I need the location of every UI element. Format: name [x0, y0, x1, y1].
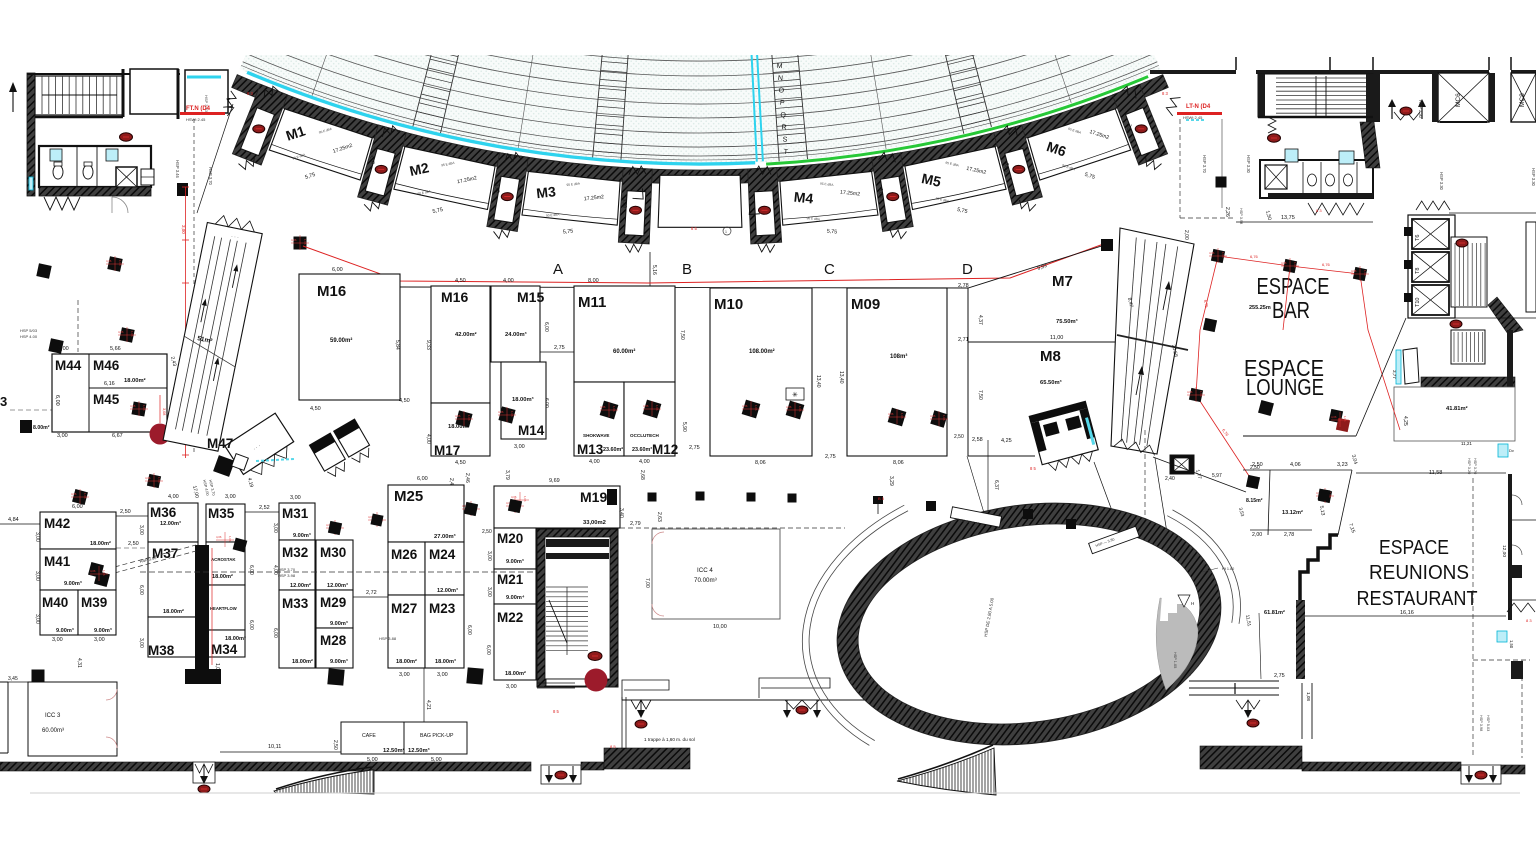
- svg-text:1,06: 1,06: [83, 493, 87, 499]
- svg-text:12.00m³: 12.00m³: [437, 587, 458, 594]
- svg-text:3,00: 3,00: [486, 587, 492, 597]
- svg-text:M36: M36: [150, 505, 177, 520]
- svg-text:2,58: 2,58: [972, 437, 983, 443]
- svg-text:4,06: 4,06: [600, 405, 606, 409]
- svg-text:3,00: 3,00: [225, 494, 236, 500]
- svg-text:4,06: 4,06: [145, 476, 151, 480]
- svg-text:MC6: MC6: [1455, 93, 1462, 107]
- svg-text:3,45: 3,45: [8, 676, 18, 682]
- svg-text:27.00m³: 27.00m³: [434, 533, 456, 540]
- svg-text:M40: M40: [42, 595, 68, 610]
- svg-text:HSP 3.30: HSP 3.30: [1439, 172, 1444, 191]
- svg-text:M38: M38: [148, 643, 175, 658]
- svg-text:4,06: 4,06: [511, 495, 517, 499]
- svg-text:M39: M39: [81, 595, 107, 610]
- svg-text:3,77: 3,77: [1392, 370, 1397, 379]
- svg-text:8,06: 8,06: [893, 460, 904, 466]
- svg-text:M19: M19: [580, 489, 607, 505]
- svg-text:HSP 3.98: HSP 3.98: [278, 573, 296, 578]
- svg-text:2,00: 2,00: [1252, 532, 1262, 538]
- svg-text:M14: M14: [518, 423, 545, 438]
- svg-text:3,00: 3,00: [437, 672, 448, 678]
- svg-text:1,06: 1,06: [1363, 270, 1367, 276]
- svg-text:8 3: 8 3: [247, 91, 253, 96]
- svg-text:3,00: 3,00: [621, 199, 628, 209]
- svg-text:FT.N (D4: FT.N (D4: [186, 106, 211, 112]
- svg-text:11,21: 11,21: [1461, 441, 1472, 446]
- svg-text:9.00m³: 9.00m³: [56, 627, 74, 634]
- svg-text:C: C: [824, 261, 835, 278]
- svg-text:M8: M8: [1040, 348, 1061, 365]
- svg-text:M42: M42: [44, 516, 70, 531]
- svg-text:5,75: 5,75: [563, 228, 574, 235]
- svg-text:4,00: 4,00: [168, 494, 179, 500]
- svg-text:4,25: 4,25: [1402, 416, 1408, 426]
- svg-text:M3: M3: [536, 183, 557, 201]
- svg-text:4,06: 4,06: [118, 330, 124, 334]
- svg-text:4,06: 4,06: [930, 414, 936, 418]
- svg-text:HSWt 2.45: HSWt 2.45: [186, 117, 206, 122]
- svg-text:M12: M12: [652, 442, 678, 457]
- svg-text:6,00: 6,00: [485, 645, 491, 655]
- svg-text:3,00: 3,00: [399, 672, 410, 678]
- svg-text:9,33: 9,33: [425, 340, 431, 350]
- svg-text:✳: ✳: [792, 391, 798, 399]
- svg-text:18.00m²: 18.00m²: [396, 658, 417, 665]
- svg-text:4,84: 4,84: [8, 517, 19, 523]
- svg-text:42.00m²: 42.00m²: [455, 331, 477, 338]
- svg-text:9.00m³: 9.00m³: [94, 627, 112, 634]
- svg-text:M31: M31: [282, 506, 309, 521]
- svg-text:1,06: 1,06: [900, 413, 904, 419]
- svg-text:R: R: [781, 124, 787, 131]
- svg-text:M17: M17: [434, 443, 460, 458]
- svg-text:2,75: 2,75: [1274, 673, 1285, 679]
- svg-text:M7: M7: [1052, 273, 1073, 290]
- svg-text:6,76: 6,76: [1322, 262, 1331, 267]
- svg-text:1,06: 1,06: [655, 405, 659, 411]
- svg-text:2,46: 2,46: [464, 473, 470, 483]
- svg-text:41.81m²: 41.81m²: [1446, 405, 1468, 412]
- svg-text:1,06: 1,06: [157, 477, 161, 483]
- svg-text:OCCLUTECH: OCCLUTECH: [630, 433, 660, 438]
- svg-text:8,00: 8,00: [588, 278, 599, 284]
- svg-text:2,78: 2,78: [958, 283, 969, 289]
- svg-text:6,00: 6,00: [72, 504, 83, 510]
- svg-text:6,00: 6,00: [417, 476, 428, 482]
- svg-text:HSP 3.30: HSP 3.30: [1531, 168, 1536, 187]
- svg-text:M09: M09: [851, 296, 880, 313]
- svg-text:23.60m³: 23.60m³: [632, 447, 652, 453]
- svg-text:4,00: 4,00: [425, 434, 431, 444]
- svg-text:3,00: 3,00: [34, 532, 40, 542]
- svg-text:1,06: 1,06: [142, 405, 146, 411]
- svg-text:4,06: 4,06: [1281, 261, 1287, 265]
- svg-text:M24: M24: [429, 547, 456, 562]
- svg-text:3,23: 3,23: [1337, 462, 1348, 468]
- svg-text:4,06: 4,06: [1290, 462, 1301, 468]
- svg-text:1,06: 1,06: [1199, 391, 1203, 397]
- svg-text:1,06: 1,06: [612, 406, 616, 412]
- svg-text:16,16: 16,16: [1400, 610, 1414, 616]
- svg-text:18.00m²: 18.00m²: [505, 670, 526, 677]
- svg-text:M46: M46: [93, 358, 120, 373]
- svg-text:2,72: 2,72: [366, 590, 377, 596]
- svg-text:12.00m³: 12.00m³: [160, 520, 181, 527]
- svg-text:M10: M10: [714, 296, 743, 313]
- svg-text:M22: M22: [497, 610, 523, 625]
- svg-text:ESPACE: ESPACE: [1379, 537, 1449, 559]
- svg-text:6,00: 6,00: [54, 395, 60, 406]
- svg-text:ICC 4: ICC 4: [697, 567, 713, 574]
- svg-text:4,06: 4,06: [786, 405, 792, 409]
- svg-text:2,75: 2,75: [825, 454, 836, 460]
- svg-text:M28: M28: [320, 633, 347, 648]
- svg-text:LOUNGE: LOUNGE: [1246, 374, 1324, 400]
- svg-text:4,06: 4,06: [742, 404, 748, 408]
- svg-text:2,50: 2,50: [1250, 465, 1260, 471]
- svg-text:MC8: MC8: [1519, 93, 1526, 107]
- svg-text:6,00: 6,00: [248, 565, 254, 575]
- svg-text:SHOKWAVE: SHOKWAVE: [583, 433, 609, 438]
- svg-text:T8: T8: [1415, 268, 1421, 274]
- svg-text:9.00m³: 9.00m³: [64, 580, 82, 587]
- svg-text:REUNIONS: REUNIONS: [1369, 562, 1469, 584]
- svg-text:4,06: 4,06: [216, 535, 222, 539]
- svg-text:1,06: 1,06: [523, 496, 527, 502]
- svg-text:RESTAURANT: RESTAURANT: [1357, 588, 1478, 610]
- svg-text:2,68: 2,68: [639, 470, 645, 480]
- svg-text:23.60m²: 23.60m²: [603, 447, 623, 453]
- svg-text:HEARTFLOW: HEARTFLOW: [210, 606, 237, 611]
- svg-text:6,67: 6,67: [112, 433, 123, 439]
- svg-text:13.12m²: 13.12m²: [1282, 509, 1303, 516]
- svg-text:4,06: 4,06: [71, 492, 77, 496]
- svg-text:HSP 1.05: HSP 1.05: [1173, 652, 1177, 668]
- svg-text:12.50m³: 12.50m³: [408, 747, 430, 754]
- svg-text:13,40: 13,40: [838, 371, 844, 384]
- svg-text:HSP 3.70: HSP 3.70: [1473, 458, 1477, 474]
- svg-text:2,50: 2,50: [332, 740, 338, 750]
- svg-text:3,00: 3,00: [94, 637, 105, 643]
- svg-text:9.00m³: 9.00m³: [330, 620, 348, 627]
- svg-text:8 3: 8 3: [1162, 91, 1168, 96]
- svg-text:12.50m²: 12.50m²: [383, 747, 405, 754]
- svg-text:1,06: 1,06: [102, 570, 106, 576]
- svg-text:4,06: 4,06: [498, 410, 504, 414]
- svg-text:HSP 3.70: HSP 3.70: [1202, 155, 1207, 174]
- svg-text:8 5: 8 5: [553, 709, 559, 714]
- svg-text:3,00: 3,00: [34, 614, 40, 624]
- svg-text:M45: M45: [93, 392, 120, 407]
- svg-text:9,69: 9,69: [549, 478, 560, 484]
- svg-text:1: 1: [725, 230, 727, 234]
- svg-text:S: S: [782, 136, 788, 143]
- svg-text:M11: M11: [578, 294, 606, 311]
- svg-text:HSP 4.00: HSP 4.00: [20, 334, 38, 339]
- svg-text:8.15m²: 8.15m²: [1246, 498, 1263, 504]
- svg-text:HSP 3.98: HSP 3.98: [1239, 208, 1243, 224]
- svg-text:10,00: 10,00: [713, 624, 727, 630]
- svg-text:18.00m³: 18.00m³: [435, 658, 456, 665]
- svg-text:CAFE: CAFE: [362, 733, 376, 739]
- svg-text:13,40: 13,40: [815, 375, 821, 388]
- svg-text:D: D: [962, 261, 973, 278]
- svg-text:4,50: 4,50: [455, 460, 466, 466]
- svg-text:61.81m²: 61.81m²: [1264, 609, 1285, 616]
- svg-text:T10: T10: [1415, 298, 1421, 307]
- svg-text:HSP 5.03: HSP 5.03: [1486, 715, 1490, 731]
- svg-text:8 5: 8 5: [691, 226, 697, 231]
- svg-text:6,00: 6,00: [138, 585, 144, 595]
- svg-text:B 5: B 5: [878, 496, 885, 501]
- svg-text:65.50m³: 65.50m³: [1040, 379, 1062, 386]
- svg-text:LT-N (D4: LT-N (D4: [1186, 104, 1211, 110]
- svg-text:ACROSTAK: ACROSTAK: [211, 557, 236, 562]
- svg-text:3,00: 3,00: [138, 638, 144, 648]
- svg-text:M21: M21: [497, 572, 524, 587]
- svg-text:M15: M15: [517, 289, 544, 305]
- svg-text:1,06: 1,06: [798, 406, 802, 412]
- svg-text:3,00: 3,00: [290, 495, 301, 501]
- svg-text:1,06: 1,06: [1221, 252, 1225, 258]
- svg-text:4,00: 4,00: [503, 278, 514, 284]
- svg-text:Ht 1.80: Ht 1.80: [1222, 567, 1234, 571]
- svg-text:4,00: 4,00: [589, 459, 600, 465]
- svg-text:3,00: 3,00: [34, 571, 40, 581]
- svg-text:8 5: 8 5: [1030, 466, 1036, 471]
- svg-text:HSP 3.30: HSP 3.30: [1418, 100, 1423, 119]
- svg-text:12.00m²: 12.00m²: [290, 582, 311, 589]
- svg-text:2,26: 2,26: [1224, 207, 1230, 217]
- svg-text:M47: M47: [207, 436, 233, 451]
- svg-text:2,63: 2,63: [656, 512, 662, 522]
- svg-text:1,06: 1,06: [130, 331, 134, 337]
- svg-text:2,50: 2,50: [482, 529, 492, 535]
- svg-text:3,08: 3,08: [162, 408, 166, 415]
- svg-text:P: P: [780, 100, 786, 107]
- svg-text:5,66: 5,66: [110, 346, 121, 352]
- svg-text:M30: M30: [320, 545, 346, 560]
- svg-text:BAG PICK-UP: BAG PICK-UP: [420, 733, 454, 739]
- svg-text:4,25: 4,25: [1001, 438, 1012, 444]
- svg-text:B: B: [682, 261, 692, 278]
- svg-text:1,06: 1,06: [754, 405, 758, 411]
- svg-text:M29: M29: [320, 595, 346, 610]
- svg-text:4,06: 4,06: [291, 238, 297, 242]
- svg-text:T6: T6: [1415, 235, 1421, 241]
- svg-text:3: 3: [0, 394, 7, 409]
- svg-text:7,00: 7,00: [644, 578, 650, 588]
- svg-text:1,06: 1,06: [228, 536, 232, 542]
- svg-text:70.00m³: 70.00m³: [694, 577, 717, 584]
- svg-text:ESPACE: ESPACE: [1257, 273, 1330, 299]
- svg-text:4,21: 4,21: [425, 700, 431, 710]
- svg-text:8 5: 8 5: [610, 744, 616, 749]
- svg-text:5,97: 5,97: [1212, 473, 1222, 479]
- svg-text:HSP 3.46: HSP 3.46: [175, 160, 180, 179]
- svg-text:M34: M34: [211, 642, 238, 657]
- svg-text:M25: M25: [394, 488, 423, 505]
- svg-text:18.00m²: 18.00m²: [212, 573, 233, 580]
- svg-text:1,08: 1,08: [1306, 692, 1311, 701]
- svg-text:2,50: 2,50: [128, 541, 139, 547]
- svg-text:3,00: 3,00: [58, 346, 69, 352]
- svg-text:ICC 3: ICC 3: [45, 713, 61, 719]
- svg-text:M33: M33: [282, 596, 309, 611]
- svg-text:4,06: 4,06: [130, 404, 136, 408]
- svg-text:33,00m2: 33,00m2: [583, 520, 606, 526]
- svg-text:6,76: 6,76: [1250, 254, 1259, 259]
- svg-text:6,00: 6,00: [332, 267, 343, 273]
- svg-text:6,16: 6,16: [104, 381, 115, 387]
- svg-text:M16: M16: [441, 289, 468, 305]
- svg-text:4,50: 4,50: [455, 278, 466, 284]
- svg-text:1,06: 1,06: [118, 260, 122, 266]
- svg-text:M13: M13: [577, 442, 604, 457]
- svg-text:8 3: 8 3: [1526, 618, 1532, 623]
- svg-text:12,00: 12,00: [1501, 545, 1507, 557]
- svg-text:11,00: 11,00: [1050, 335, 1063, 341]
- svg-text:4,50: 4,50: [399, 398, 410, 404]
- svg-text:M44: M44: [55, 358, 82, 373]
- svg-text:4,31: 4,31: [76, 658, 82, 668]
- svg-text:9.00m³: 9.00m³: [293, 532, 311, 539]
- svg-text:18.00m²: 18.00m²: [292, 658, 313, 665]
- svg-text:13,75: 13,75: [1281, 215, 1295, 221]
- svg-text:4,06: 4,06: [643, 404, 649, 408]
- svg-text:10,11: 10,11: [268, 744, 281, 750]
- svg-text:2,00: 2,00: [1183, 230, 1189, 240]
- svg-text:HSP 3.88: HSP 3.88: [379, 636, 397, 641]
- svg-text:1,06: 1,06: [303, 239, 307, 245]
- svg-text:3,00: 3,00: [272, 523, 278, 533]
- svg-text:60.00m²: 60.00m²: [613, 348, 635, 355]
- svg-text:M23: M23: [429, 601, 456, 616]
- svg-text:4,06: 4,06: [1187, 390, 1193, 394]
- svg-text:HSP 3.20: HSP 3.20: [1467, 458, 1471, 474]
- svg-text:255.25m: 255.25m: [1249, 305, 1271, 311]
- svg-text:4,00: 4,00: [639, 459, 650, 465]
- svg-text:M27: M27: [391, 601, 417, 616]
- svg-text:3,00: 3,00: [514, 444, 525, 450]
- svg-text:9.00m³: 9.00m³: [506, 558, 524, 565]
- svg-text:1 trappe à 1,60 m. du sol: 1 trappe à 1,60 m. du sol: [644, 737, 695, 742]
- svg-text:6,00: 6,00: [543, 322, 549, 332]
- svg-text:18.00m²: 18.00m²: [90, 540, 111, 547]
- svg-text:N: N: [778, 75, 784, 82]
- svg-text:M35: M35: [208, 506, 235, 521]
- svg-text:M26: M26: [391, 547, 418, 562]
- svg-text:8,06: 8,06: [755, 460, 766, 466]
- svg-text:3,29: 3,29: [888, 476, 894, 486]
- svg-text:4,06: 4,06: [888, 412, 894, 416]
- svg-text:M20: M20: [497, 531, 523, 546]
- svg-text:M41: M41: [44, 554, 71, 569]
- svg-text:A: A: [553, 261, 563, 278]
- svg-text:59.00m²: 59.00m²: [330, 337, 352, 344]
- svg-text:4,06: 4,06: [1209, 251, 1215, 255]
- svg-text:8 3: 8 3: [1316, 208, 1322, 213]
- svg-text:3,00: 3,00: [57, 433, 68, 439]
- svg-text:4,50: 4,50: [310, 406, 321, 412]
- svg-text:4,06: 4,06: [106, 259, 112, 263]
- svg-text:2,50: 2,50: [120, 509, 131, 515]
- svg-text:18.00m²: 18.00m²: [124, 377, 146, 384]
- svg-text:HSP 5/03: HSP 5/03: [20, 328, 38, 333]
- svg-text:M: M: [776, 63, 783, 70]
- svg-text:6,00: 6,00: [466, 625, 472, 635]
- svg-text:75.50m³: 75.50m³: [1056, 318, 1078, 325]
- svg-text:2,52: 2,52: [259, 505, 270, 511]
- svg-text:7,50: 7,50: [977, 390, 983, 400]
- svg-text:3,00: 3,00: [52, 637, 63, 643]
- svg-text:M4: M4: [793, 189, 814, 207]
- svg-text:1,06: 1,06: [1293, 262, 1297, 268]
- svg-text:1,06: 1,06: [1343, 416, 1347, 422]
- svg-text:18.00m³: 18.00m³: [512, 396, 534, 403]
- svg-text:5,75: 5,75: [826, 228, 837, 235]
- svg-text:108m³: 108m³: [890, 353, 907, 360]
- svg-text:1,50: 1,50: [1509, 640, 1514, 649]
- svg-text:18.00m²: 18.00m²: [163, 608, 184, 615]
- svg-text:5,16: 5,16: [651, 265, 657, 275]
- svg-text:3,00: 3,00: [506, 684, 517, 690]
- svg-text:H: H: [1191, 601, 1194, 606]
- svg-text:108.00m²: 108.00m²: [749, 348, 775, 355]
- svg-text:6,00: 6,00: [248, 620, 254, 630]
- svg-text:HSP 3.70: HSP 3.70: [208, 167, 213, 186]
- svg-text:BAR: BAR: [1272, 297, 1310, 323]
- svg-text:2,50: 2,50: [954, 434, 964, 440]
- svg-text:HSP 3.98: HSP 3.98: [1479, 715, 1483, 731]
- svg-text:2,75: 2,75: [689, 445, 700, 451]
- svg-text:24.00m³: 24.00m³: [505, 331, 527, 338]
- svg-text:1,06: 1,06: [942, 415, 946, 421]
- svg-text:4,06: 4,06: [455, 414, 461, 418]
- svg-text:2,75: 2,75: [554, 345, 565, 351]
- svg-text:3,00: 3,00: [181, 225, 186, 234]
- svg-text:M32: M32: [282, 545, 308, 560]
- svg-text:1,06: 1,06: [467, 415, 471, 421]
- svg-text:1,06: 1,06: [510, 411, 514, 417]
- svg-text:HSP 3.70: HSP 3.70: [278, 567, 296, 572]
- svg-text:6,37: 6,37: [993, 480, 999, 490]
- svg-text:9.00m³: 9.00m³: [330, 658, 348, 665]
- svg-text:3,40: 3,40: [618, 508, 624, 518]
- svg-text:12.00m³: 12.00m³: [327, 582, 348, 589]
- svg-text:4,06: 4,06: [1351, 269, 1357, 273]
- svg-text:4,06: 4,06: [90, 569, 96, 573]
- svg-text:5,90: 5,90: [681, 422, 687, 432]
- svg-text:3,00: 3,00: [138, 525, 144, 535]
- svg-text:2,79: 2,79: [630, 521, 641, 527]
- svg-text:9.00m⁴: 9.00m⁴: [506, 595, 525, 601]
- svg-text:60.00m³: 60.00m³: [42, 728, 64, 734]
- svg-text:2,71: 2,71: [958, 337, 969, 343]
- svg-text:8.00m²: 8.00m²: [33, 425, 50, 431]
- svg-text:3,79: 3,79: [504, 470, 510, 480]
- svg-text:3,00: 3,00: [486, 551, 492, 561]
- svg-text:5,84: 5,84: [394, 340, 400, 350]
- svg-text:6,00: 6,00: [272, 628, 278, 638]
- svg-text:2,40: 2,40: [1165, 476, 1175, 482]
- svg-text:7,50: 7,50: [679, 330, 685, 340]
- svg-text:4,37: 4,37: [977, 315, 983, 325]
- svg-text:3,00: 3,00: [877, 188, 884, 198]
- svg-text:Dv: Dv: [1509, 448, 1514, 453]
- svg-text:18.00m³: 18.00m³: [225, 635, 246, 642]
